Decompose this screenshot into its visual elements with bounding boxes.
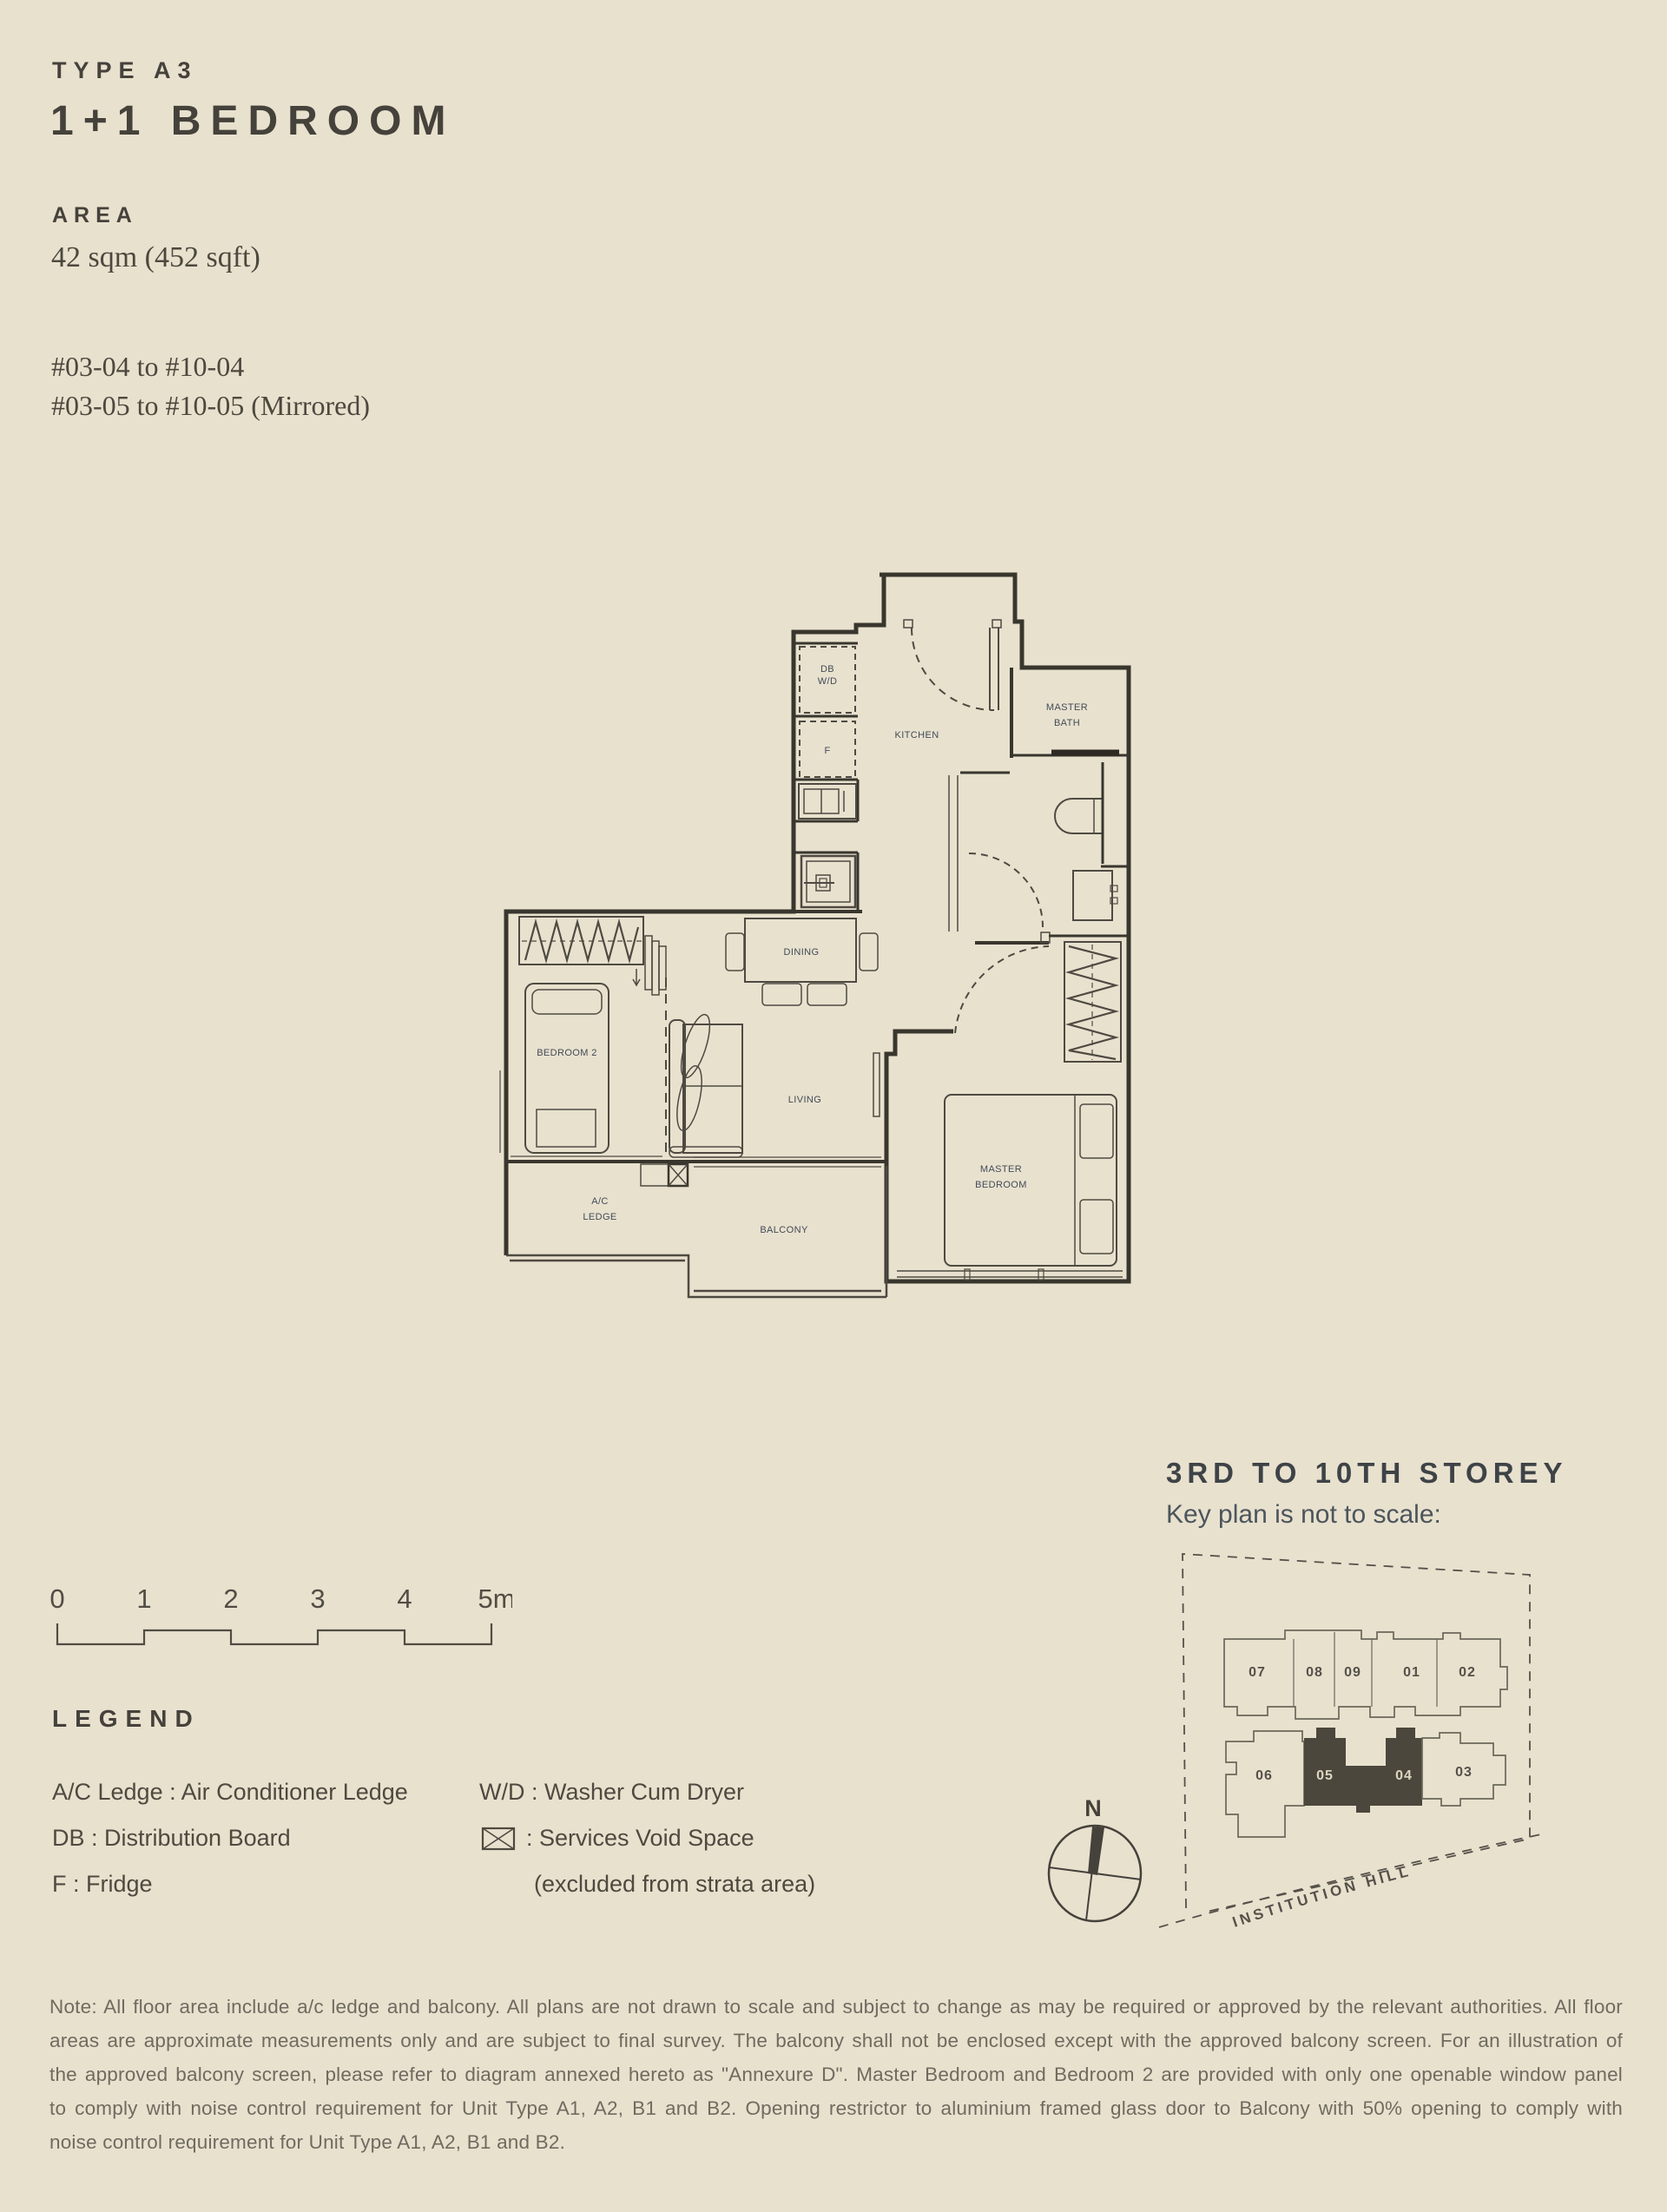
services-void-icon bbox=[669, 1164, 688, 1186]
area-value: 42 sqm (452 sqft) bbox=[51, 241, 260, 274]
basin-cabinet bbox=[1073, 871, 1117, 920]
master-wardrobe bbox=[1064, 942, 1121, 1062]
entry-door bbox=[904, 620, 1001, 710]
unit-label-06: 06 bbox=[1255, 1768, 1273, 1783]
legend-item-db: DB : Distribution Board bbox=[52, 1815, 408, 1861]
unit-label-03: 03 bbox=[1455, 1765, 1473, 1780]
scale-tick-5: 5m bbox=[478, 1585, 512, 1614]
unit-label-09: 09 bbox=[1344, 1665, 1361, 1680]
label-dining: DINING bbox=[784, 947, 820, 958]
keyplan-diagram: INSTITUTION HILL 07 08 09 01 02 06 05 04… bbox=[1155, 1535, 1667, 1947]
footnote-line: noise control requirement for Unit Type … bbox=[49, 2125, 1623, 2159]
label-master-bedroom-1: MASTER bbox=[980, 1164, 1022, 1175]
keyplan-subheading: Key plan is not to scale: bbox=[1166, 1500, 1441, 1530]
compass-north-label: N bbox=[1084, 1795, 1102, 1821]
legend-item-services-void-text: : Services Void Space bbox=[526, 1815, 754, 1861]
label-kitchen: KITCHEN bbox=[894, 730, 939, 741]
site-boundary bbox=[1183, 1554, 1530, 1912]
unit-range-1: #03-04 to #10-04 bbox=[51, 351, 244, 383]
bedroom2-wardrobe bbox=[519, 917, 643, 964]
toilet bbox=[1055, 799, 1103, 833]
label-ac-ledge-2: LEDGE bbox=[583, 1212, 616, 1222]
label-balcony: BALCONY bbox=[760, 1225, 808, 1235]
footnote-line: areas are approximate measurements only … bbox=[49, 2024, 1623, 2057]
master-bedroom-door-arc bbox=[955, 946, 1049, 1033]
scale-tick-2: 2 bbox=[223, 1585, 238, 1614]
legend-column-1: A/C Ledge : Air Conditioner Ledge DB : D… bbox=[52, 1769, 408, 1907]
unit-label-02: 02 bbox=[1459, 1665, 1476, 1680]
unit-06-outline bbox=[1226, 1731, 1304, 1837]
unit-range-2: #03-05 to #10-05 (Mirrored) bbox=[51, 390, 370, 422]
street-name: INSTITUTION HILL bbox=[1230, 1863, 1413, 1931]
unit-label-05: 05 bbox=[1316, 1768, 1334, 1783]
area-heading: AREA bbox=[52, 203, 138, 228]
master-bed bbox=[945, 1095, 1117, 1266]
scale-bar-line bbox=[57, 1623, 491, 1644]
tv-console bbox=[873, 1053, 880, 1116]
footnote-line: the approved balcony screen, please refe… bbox=[49, 2057, 1623, 2091]
page-title: 1+1 BEDROOM bbox=[50, 97, 455, 145]
floorplan-brochure-page: TYPE A3 1+1 BEDROOM AREA 42 sqm (452 sqf… bbox=[0, 0, 1667, 2212]
unit-label-01: 01 bbox=[1403, 1665, 1420, 1680]
legend-item-fridge: F : Fridge bbox=[52, 1861, 408, 1907]
label-living: LIVING bbox=[788, 1095, 821, 1105]
legend-item-services-void: : Services Void Space bbox=[479, 1815, 815, 1861]
footnote-line: to comply with noise control requirement… bbox=[49, 2091, 1623, 2125]
passage-sliding-door bbox=[949, 775, 958, 932]
legend-item-ac-ledge: A/C Ledge : Air Conditioner Ledge bbox=[52, 1769, 408, 1815]
label-ac-ledge-1: A/C bbox=[591, 1196, 609, 1207]
label-master-bath-1: MASTER bbox=[1046, 702, 1088, 713]
dining-table bbox=[726, 918, 878, 1005]
unit-label-04: 04 bbox=[1395, 1768, 1413, 1783]
legend-item-excluded: (excluded from strata area) bbox=[479, 1861, 815, 1907]
legend-column-2: W/D : Washer Cum Dryer : Services Void S… bbox=[479, 1769, 815, 1907]
bedroom2-door-arrow bbox=[633, 969, 640, 985]
master-bedroom-window bbox=[897, 1269, 1123, 1280]
unit-label-08: 08 bbox=[1306, 1665, 1323, 1680]
label-wd: W/D bbox=[818, 676, 838, 687]
label-master-bedroom-2: BEDROOM bbox=[975, 1180, 1027, 1190]
kitchen-sink bbox=[799, 784, 856, 819]
legend-item-wd: W/D : Washer Cum Dryer bbox=[479, 1769, 815, 1815]
wall-ac-ledge-balcony bbox=[506, 1166, 886, 1297]
scale-bar: 0 1 2 3 4 5m bbox=[43, 1585, 512, 1655]
keyplan-heading: 3RD TO 10TH STOREY bbox=[1166, 1457, 1568, 1490]
scale-tick-0: 0 bbox=[49, 1585, 64, 1614]
sofa bbox=[669, 1011, 742, 1157]
label-fridge: F bbox=[824, 746, 830, 756]
cooker-hob bbox=[801, 856, 855, 907]
ac-ledge-step bbox=[641, 1164, 669, 1186]
label-bedroom2: BEDROOM 2 bbox=[537, 1048, 597, 1058]
footnote-line: Note: All floor area include a/c ledge a… bbox=[49, 1990, 1623, 2024]
bedroom2-sliding-stack bbox=[645, 936, 666, 995]
bath-door-arc bbox=[969, 853, 1043, 927]
footnote: Note: All floor area include a/c ledge a… bbox=[49, 1990, 1623, 2159]
unit-label-07: 07 bbox=[1249, 1665, 1266, 1680]
north-compass-icon: N bbox=[1027, 1771, 1166, 1927]
scale-tick-3: 3 bbox=[310, 1585, 325, 1614]
services-void-legend-icon bbox=[479, 1826, 517, 1852]
legend-heading: LEGEND bbox=[52, 1705, 201, 1733]
wall-bath-inner bbox=[1101, 762, 1129, 866]
scale-tick-1: 1 bbox=[136, 1585, 151, 1614]
label-master-bath-2: BATH bbox=[1054, 718, 1080, 728]
floor-plan-drawing: DB W/D F KITCHEN MASTER BATH DINING LIVI… bbox=[489, 554, 1138, 1307]
unit-type-label: TYPE A3 bbox=[52, 57, 198, 84]
compass-needle bbox=[1088, 1827, 1104, 1875]
label-db: DB bbox=[820, 664, 834, 675]
scale-tick-4: 4 bbox=[397, 1585, 412, 1614]
bedroom2-bed bbox=[525, 984, 609, 1153]
wall-outline-right bbox=[880, 575, 1129, 1281]
